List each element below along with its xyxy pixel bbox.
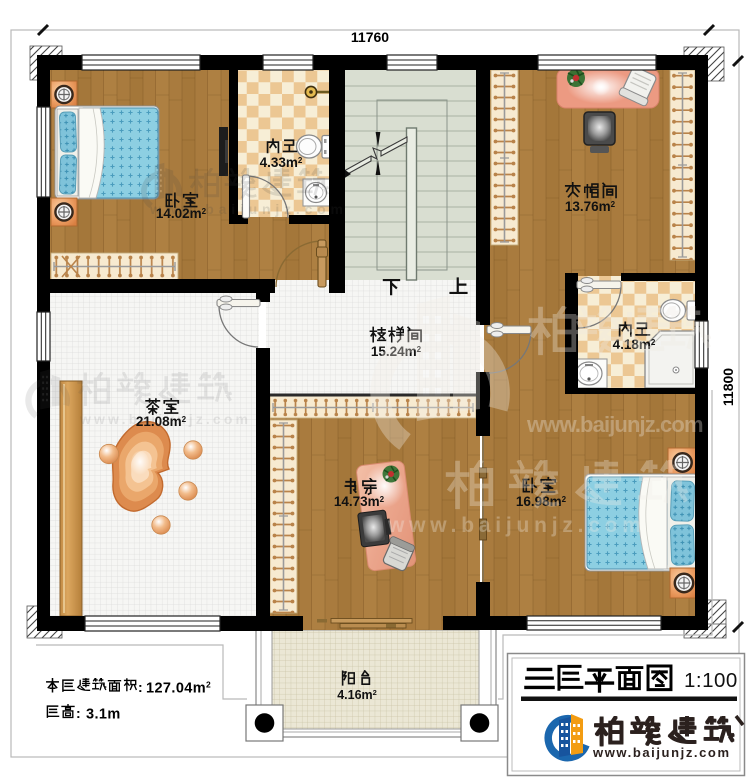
svg-text::: :: [76, 705, 81, 721]
svg-text:14.73m2: 14.73m2: [334, 494, 385, 509]
svg-text:4.16m2: 4.16m2: [337, 688, 377, 702]
svg-text:www.baijunjz.com: www.baijunjz.com: [79, 411, 250, 427]
svg-text:3.1m: 3.1m: [86, 707, 121, 723]
svg-text:www.baijunjz.com: www.baijunjz.com: [592, 745, 730, 760]
svg-text:1:100: 1:100: [684, 669, 738, 692]
svg-text:13.76m2: 13.76m2: [565, 199, 616, 214]
svg-text:127.04m2: 127.04m2: [146, 680, 211, 697]
svg-text:4.33m2: 4.33m2: [260, 155, 303, 170]
svg-text:11800: 11800: [720, 368, 736, 406]
svg-text:www.baijunjz.com: www.baijunjz.com: [526, 412, 705, 437]
svg-text:11760: 11760: [351, 29, 389, 45]
svg-text::: :: [138, 679, 143, 695]
